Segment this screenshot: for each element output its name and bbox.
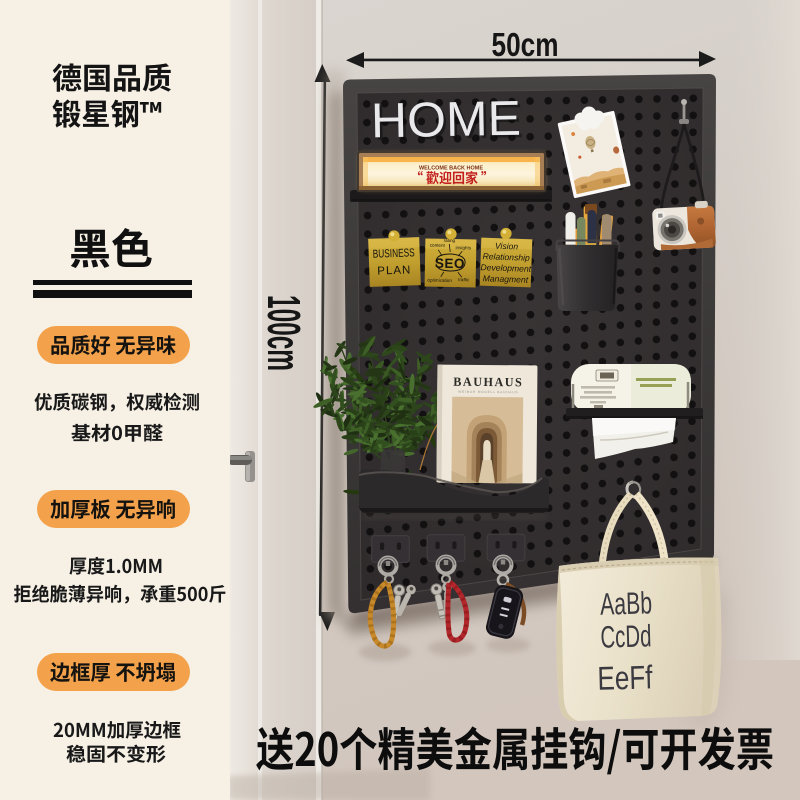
- svg-text:traffic: traffic: [458, 277, 470, 282]
- svg-text:PLAN: PLAN: [377, 264, 411, 277]
- svg-text:Managment: Managment: [483, 273, 529, 285]
- svg-text:EeFf: EeFf: [597, 658, 654, 696]
- svg-text:WEIMAR MODELL BAUHAUS: WEIMAR MODELL BAUHAUS: [458, 390, 518, 395]
- svg-text:HOME: HOME: [371, 92, 522, 149]
- svg-text:50cm: 50cm: [492, 26, 559, 63]
- svg-text:BAUHAUS: BAUHAUS: [453, 375, 523, 390]
- svg-text:content: content: [430, 243, 446, 248]
- svg-text:Relationship: Relationship: [482, 251, 530, 263]
- svg-text:CcDd: CcDd: [600, 618, 652, 654]
- svg-text:insights: insights: [455, 245, 471, 250]
- svg-text:Development: Development: [480, 262, 532, 274]
- svg-text:WELCOME BACK HOME: WELCOME BACK HOME: [419, 166, 483, 172]
- svg-text:optimization: optimization: [427, 278, 452, 283]
- svg-text:100cm: 100cm: [258, 295, 310, 371]
- svg-text:BUSINESS: BUSINESS: [373, 247, 416, 260]
- svg-text:AaBb: AaBb: [600, 585, 653, 621]
- svg-text:Vision: Vision: [495, 241, 519, 252]
